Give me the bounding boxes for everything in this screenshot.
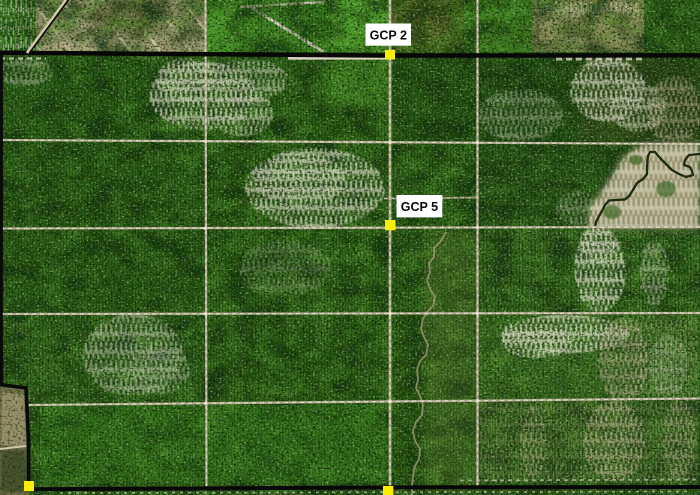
svg-text:GCP 2: GCP 2 [370,29,407,43]
svg-text:GCP 5: GCP 5 [401,200,438,214]
